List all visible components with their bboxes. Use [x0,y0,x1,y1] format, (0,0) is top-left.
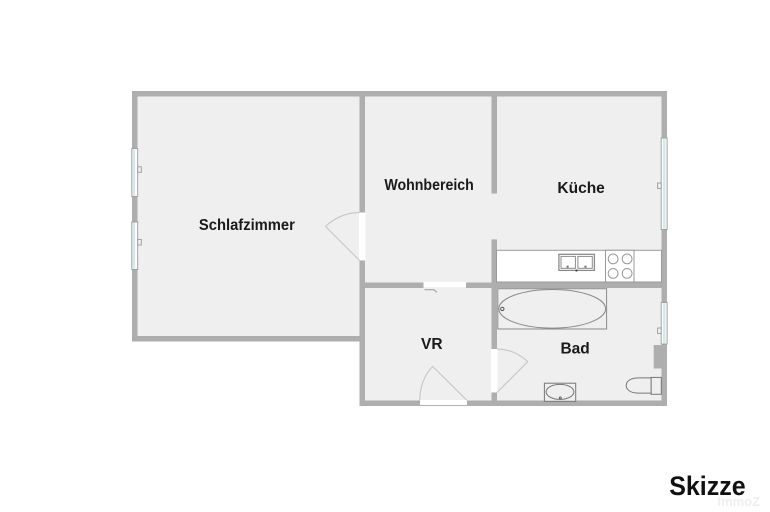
svg-text:ImmoZ: ImmoZ [718,494,761,509]
svg-text:Wohnbereich: Wohnbereich [384,177,474,194]
svg-text:Küche: Küche [557,180,605,197]
svg-text:Bad: Bad [560,341,589,358]
svg-text:VR: VR [421,336,443,353]
svg-text:Schlafzimmer: Schlafzimmer [199,217,295,234]
